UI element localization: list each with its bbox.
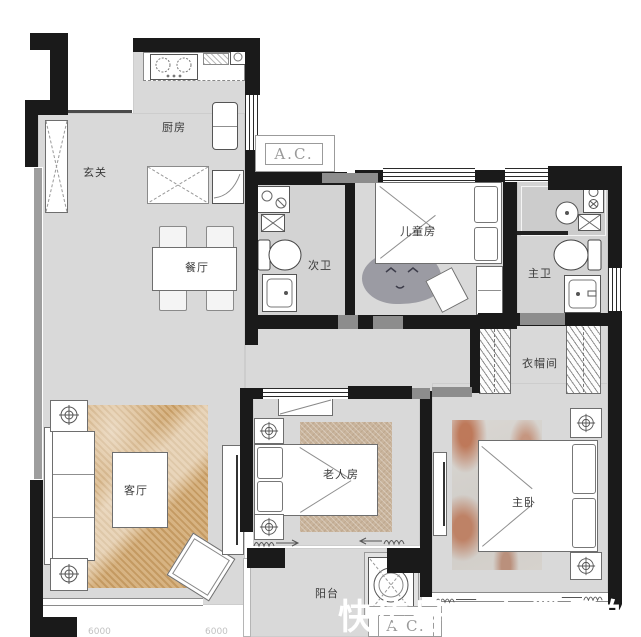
tv-master xyxy=(443,462,445,526)
cabinet-cross-icon xyxy=(147,166,209,204)
floor-plan: A.C. A.C. 厨房 玄关 餐厅 次卫 儿童房 主卫 衣帽间 客厅 老人房 … xyxy=(0,0,641,637)
curtain-squiggle-icon xyxy=(358,535,406,547)
lamp-icon xyxy=(58,563,80,585)
master-pillow xyxy=(572,498,596,548)
wall xyxy=(387,548,432,573)
dimension-text: 6000 xyxy=(205,627,228,637)
wall xyxy=(30,480,43,637)
wall xyxy=(475,170,505,182)
room-label-closet: 衣帽间 xyxy=(522,355,558,371)
balcony-edge xyxy=(243,558,251,637)
bath1-toilet-icon xyxy=(551,237,603,273)
sofa xyxy=(52,431,95,561)
lamp-icon xyxy=(259,517,279,537)
kids-pillow xyxy=(474,186,498,223)
closet-wardrobe-left xyxy=(479,327,511,394)
cat-face-marks-icon xyxy=(378,264,430,292)
bath2-basin-icon xyxy=(257,186,290,213)
tv-living xyxy=(236,455,238,545)
lamp-icon xyxy=(576,413,596,433)
kitchen-appliance-icon xyxy=(212,170,244,204)
window-living-bottom xyxy=(43,598,203,606)
lamp-icon xyxy=(58,404,80,426)
bath2-vanity-icon xyxy=(262,274,297,312)
door-master xyxy=(432,387,472,397)
bath2-shaft-icon xyxy=(261,214,285,232)
wall xyxy=(245,38,260,95)
wall xyxy=(608,166,622,268)
room-label-bath1: 主卫 xyxy=(528,265,552,281)
door-bath2 xyxy=(338,315,358,329)
door-shaft-top xyxy=(322,173,378,183)
lamp-icon xyxy=(259,421,279,441)
bath2-toilet-icon xyxy=(257,237,303,273)
closet-wardrobe-left-rail xyxy=(494,329,495,392)
room-label-kids: 儿童房 xyxy=(400,223,436,239)
wall xyxy=(25,100,38,167)
room-label-bath2: 次卫 xyxy=(308,257,332,273)
wall xyxy=(245,315,347,329)
bay-window-left xyxy=(33,167,43,480)
wall xyxy=(247,548,285,568)
kitchen-board xyxy=(203,53,229,65)
wall xyxy=(345,181,355,317)
elder-pillow xyxy=(257,481,283,512)
wall xyxy=(348,386,412,399)
wall xyxy=(240,388,253,532)
bath1-shaft-icon xyxy=(578,214,601,231)
master-pillow xyxy=(572,444,596,494)
window-kids xyxy=(383,168,475,182)
bath1-vanity-icon xyxy=(564,275,601,313)
curtain-squiggle-icon xyxy=(252,537,300,549)
door-kids xyxy=(373,316,403,329)
elder-pillow xyxy=(257,447,283,479)
wall xyxy=(30,617,77,637)
window-corridor xyxy=(263,388,348,399)
dimension-text: 6000 xyxy=(88,627,111,637)
room-label-entry: 玄关 xyxy=(83,164,107,180)
entry-door-line xyxy=(68,110,132,113)
shower-glass-line xyxy=(510,231,568,235)
kids-desk-line xyxy=(478,290,501,291)
ac-unit-top: A.C. xyxy=(255,135,335,172)
sofa-cushion-line xyxy=(53,474,94,475)
entry-wardrobe-cross-icon xyxy=(45,120,68,213)
sofa-cushion-line xyxy=(53,517,94,518)
wall xyxy=(470,325,480,393)
kids-pillow xyxy=(474,227,498,261)
elder-dresser-line xyxy=(278,398,333,416)
window-bath1 xyxy=(505,168,548,182)
watermark-text: 快传号 / 左撇子的家居 xyxy=(338,589,641,637)
door-bath1 xyxy=(520,313,565,325)
closet-wardrobe-right-rail xyxy=(583,327,584,392)
room-label-balcony: 阳台 xyxy=(315,585,339,601)
stove-icon xyxy=(150,54,198,80)
ac-label-top: A.C. xyxy=(265,143,323,165)
room-label-living: 客厅 xyxy=(124,482,148,498)
room-label-elder: 老人房 xyxy=(323,466,359,482)
door-elder xyxy=(412,388,430,399)
shower-head-icon xyxy=(554,200,580,226)
room-label-kitchen: 厨房 xyxy=(162,119,186,135)
room-label-dining: 餐厅 xyxy=(185,259,209,275)
wall xyxy=(503,181,517,317)
wall xyxy=(608,311,622,610)
lamp-icon xyxy=(576,556,596,576)
wall xyxy=(133,38,245,52)
room-label-master: 主卧 xyxy=(512,494,536,510)
window-right-wall xyxy=(608,268,622,311)
fridge-divider xyxy=(213,126,237,127)
